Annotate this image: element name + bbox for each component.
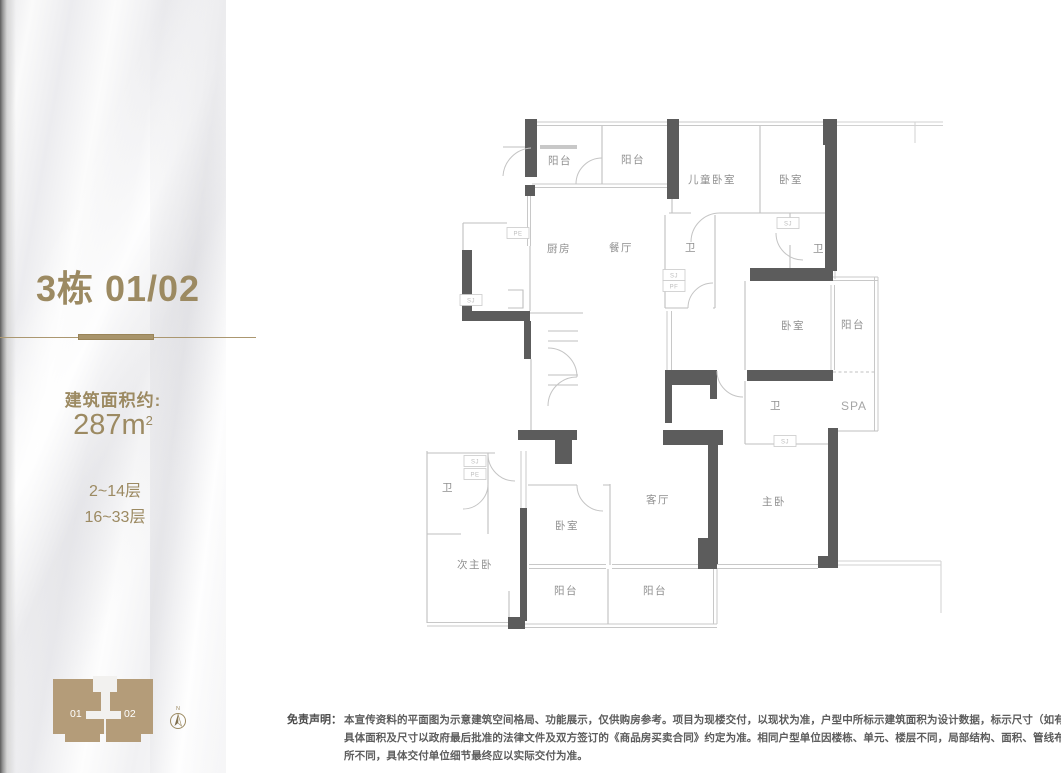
disclaimer-line: 具体面积及尺寸以政府最后批准的法律文件及双方签订的《商品房买卖合同》约定为准。相…	[344, 729, 1061, 747]
room-label: 卫	[770, 400, 782, 412]
room-label: 卫	[685, 242, 697, 254]
shaft-label: PE	[470, 473, 479, 479]
adjacent-unit-lines	[837, 122, 943, 613]
room-label: 卫	[442, 482, 454, 494]
room-label: 卧室	[555, 519, 579, 532]
compass-icon: N	[171, 706, 186, 729]
shaft-label: SJ	[471, 460, 479, 466]
room-label: 次主卧	[457, 558, 493, 571]
vent-hatch-strip	[540, 145, 577, 149]
disclaimer-line: 本宣传资料的平面图为示意建筑空间格局、功能展示，仅供购房参考。项目为现楼交付，以…	[344, 711, 1061, 729]
disclaimer-text: 本宣传资料的平面图为示意建筑空间格局、功能展示，仅供购房参考。项目为现楼交付，以…	[344, 711, 1061, 765]
room-label: 餐厅	[609, 241, 633, 254]
shaft-label: SJ	[670, 274, 678, 280]
area-label: 建筑面积约:	[0, 386, 226, 411]
divider-accent-bar	[78, 334, 154, 340]
compass-north-label: N	[176, 706, 180, 712]
unit-title: 3栋 01/02	[0, 260, 236, 312]
room-label: 卧室	[781, 319, 805, 332]
room-label: 阳台	[643, 584, 667, 597]
area-number: 287m	[73, 409, 146, 441]
utility-shafts: PESJSJSJPFSJSJPE	[460, 218, 799, 480]
area-value: 287m2	[0, 409, 226, 442]
disclaimer: 免责声明： 本宣传资料的平面图为示意建筑空间格局、功能展示，仅供购房参考。项目为…	[287, 711, 1061, 765]
shaft-label: PE	[513, 232, 522, 238]
room-label: 客厅	[646, 493, 670, 506]
floor-range-line: 16~33层	[0, 505, 230, 531]
room-label: 阳台	[841, 318, 865, 331]
shaft-label: SJ	[467, 299, 475, 305]
disclaimer-label: 免责声明：	[287, 711, 342, 765]
door-arcs	[463, 148, 803, 511]
unit-02-label: 02	[124, 708, 136, 720]
room-label: SPA	[841, 399, 867, 413]
room-label: 卧室	[779, 173, 803, 186]
room-label: 阳台	[554, 584, 578, 597]
unit-01-label: 01	[70, 708, 82, 720]
floor-range: 2~14层16~33层	[0, 479, 230, 531]
floor-plan: PESJSJSJPFSJSJPE 阳台阳台儿童卧室卧室厨房餐厅卫卫卧室阳台卫SP…	[395, 113, 955, 637]
disclaimer-line: 所不同，具体交付单位细节最终应以实际交付为准。	[344, 747, 1061, 765]
room-label: 厨房	[547, 242, 571, 255]
room-label: 卫	[813, 243, 825, 255]
structural-walls	[462, 119, 838, 629]
room-label: 阳台	[621, 153, 645, 166]
shaft-label: PF	[670, 285, 679, 291]
building-footprint-svg: 01 02 N	[38, 672, 238, 752]
room-label: 主卧	[762, 495, 786, 508]
room-label: 儿童卧室	[688, 173, 736, 186]
shaft-label: SJ	[784, 222, 792, 228]
floor-plan-svg: PESJSJSJPFSJSJPE 阳台阳台儿童卧室卧室厨房餐厅卫卫卧室阳台卫SP…	[395, 113, 955, 637]
area-superscript: 2	[146, 413, 153, 428]
shaft-label: SJ	[781, 440, 789, 446]
room-label: 阳台	[548, 154, 572, 167]
floor-range-line: 2~14层	[0, 479, 230, 505]
building-footprint-diagram: 01 02 N	[38, 672, 238, 752]
